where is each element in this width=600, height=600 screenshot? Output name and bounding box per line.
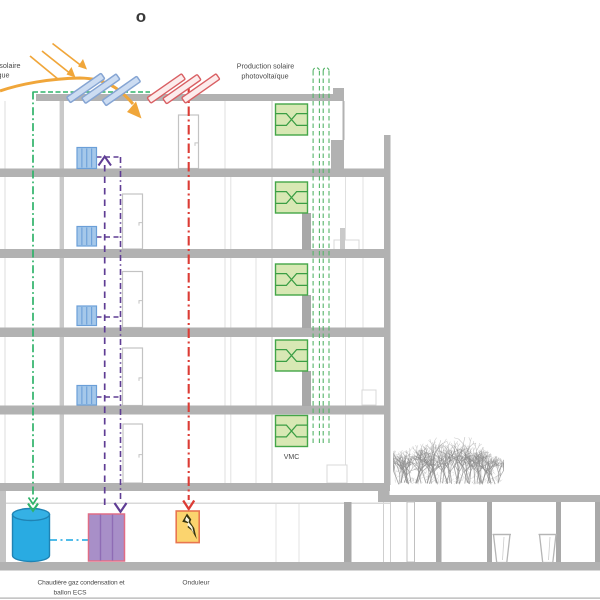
svg-text:photovoltaïque: photovoltaïque: [241, 72, 288, 81]
svg-text:Production solaire: Production solaire: [0, 61, 21, 70]
svg-text:ballon ECS: ballon ECS: [54, 590, 88, 597]
svg-text:thermique: thermique: [0, 71, 10, 80]
svg-text:o: o: [136, 7, 146, 26]
svg-text:VMC: VMC: [284, 454, 300, 461]
svg-text:Onduleur: Onduleur: [182, 580, 210, 587]
svg-text:Production solaire: Production solaire: [237, 62, 295, 71]
svg-text:Chaudière gaz condensation et: Chaudière gaz condensation et: [38, 580, 125, 587]
